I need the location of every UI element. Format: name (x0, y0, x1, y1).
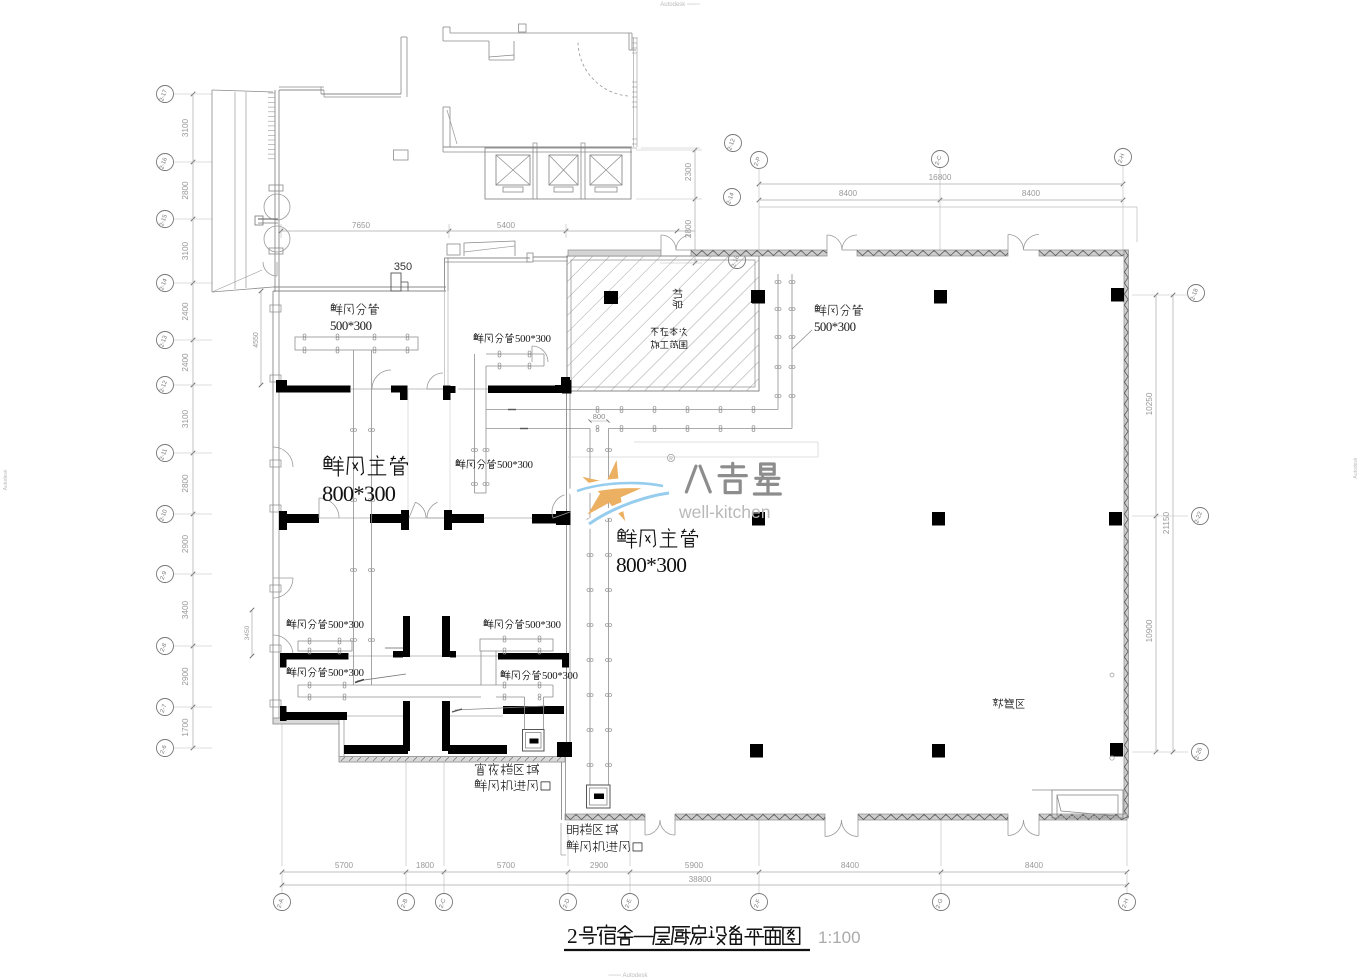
svg-text:Autodesk: Autodesk (1353, 457, 1359, 478)
svg-text:500*300: 500*300 (515, 333, 551, 345)
svg-text:5700: 5700 (497, 861, 516, 870)
svg-text:▫▫▫▫▫▫ Autodesk: ▫▫▫▫▫▫ Autodesk (608, 973, 648, 979)
svg-text:21150: 21150 (1162, 511, 1171, 534)
svg-text:8400: 8400 (1025, 861, 1044, 870)
svg-text:2400: 2400 (181, 302, 190, 321)
svg-text:2300: 2300 (684, 162, 693, 181)
svg-text:350: 350 (394, 261, 412, 273)
svg-text:5900: 5900 (685, 861, 704, 870)
svg-text:8400: 8400 (1022, 189, 1041, 198)
svg-text:2900: 2900 (181, 667, 190, 686)
svg-text:3400: 3400 (181, 600, 190, 619)
svg-text:5700: 5700 (335, 861, 354, 870)
svg-text:1800: 1800 (416, 861, 435, 870)
svg-text:10250: 10250 (1145, 392, 1154, 415)
svg-text:8400: 8400 (839, 189, 858, 198)
svg-text:3100: 3100 (181, 241, 190, 260)
svg-text:500*300: 500*300 (330, 319, 372, 333)
svg-text:500*300: 500*300 (497, 459, 533, 471)
svg-text:2400: 2400 (181, 353, 190, 372)
svg-text:38800: 38800 (689, 875, 712, 884)
svg-text:3100: 3100 (181, 118, 190, 137)
svg-text:500*300: 500*300 (814, 320, 856, 334)
svg-text:2800: 2800 (181, 474, 190, 493)
svg-text:3100: 3100 (181, 409, 190, 428)
svg-text:500*300: 500*300 (525, 619, 561, 631)
svg-text:10900: 10900 (1145, 619, 1154, 642)
svg-text:3450: 3450 (244, 625, 251, 640)
svg-text:500*300: 500*300 (328, 619, 364, 631)
svg-text:4550: 4550 (253, 332, 260, 348)
svg-text:R: R (669, 457, 673, 463)
svg-text:7650: 7650 (352, 221, 371, 230)
svg-text:8400: 8400 (841, 861, 860, 870)
svg-text:well-kitchen: well-kitchen (678, 502, 770, 522)
svg-text:1700: 1700 (181, 718, 190, 737)
svg-text:2800: 2800 (181, 181, 190, 200)
svg-text:1:100: 1:100 (818, 928, 861, 947)
svg-text:Autodesk: Autodesk (3, 469, 9, 490)
svg-text:800*300: 800*300 (322, 481, 396, 506)
svg-text:Autodesk ▫▫▫▫▫▫: Autodesk ▫▫▫▫▫▫ (660, 2, 699, 8)
svg-text:5400: 5400 (497, 221, 516, 230)
svg-text:500*300: 500*300 (328, 667, 364, 679)
svg-text:800: 800 (593, 412, 606, 421)
svg-text:500*300: 500*300 (542, 670, 578, 682)
svg-text:800*300: 800*300 (616, 553, 687, 577)
svg-text:2900: 2900 (181, 534, 190, 553)
svg-text:2900: 2900 (590, 861, 609, 870)
svg-text:2: 2 (567, 924, 578, 948)
